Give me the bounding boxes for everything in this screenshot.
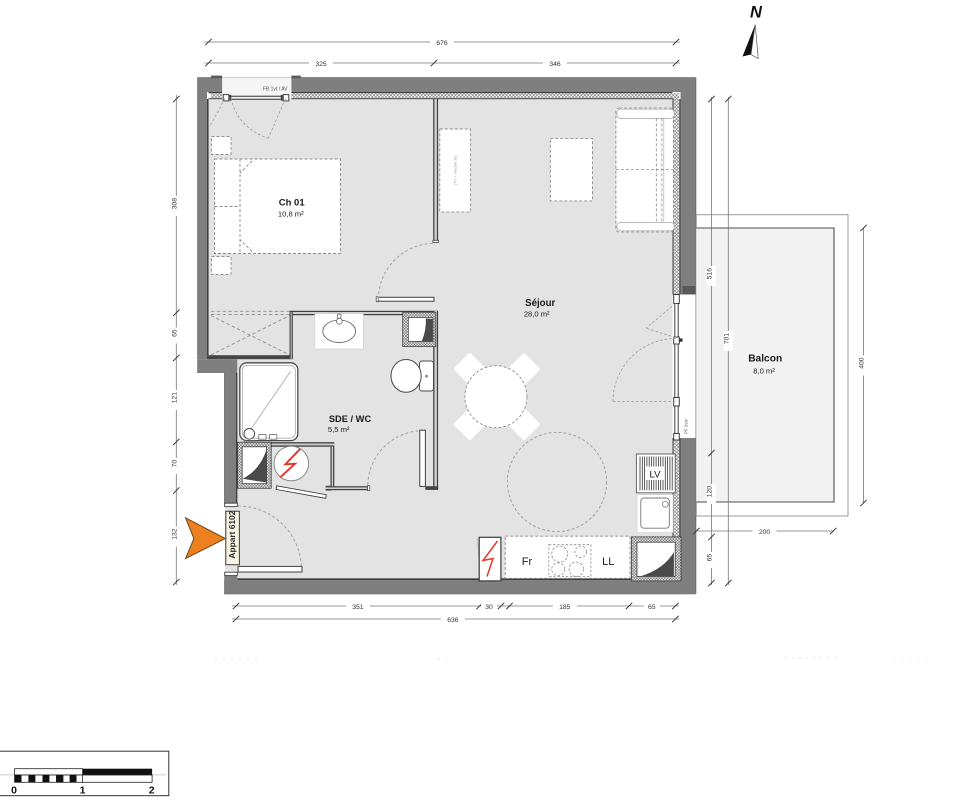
svg-text:65: 65	[707, 554, 714, 562]
svg-text:Séjour: Séjour	[525, 298, 555, 309]
svg-text:132: 132	[171, 528, 178, 540]
svg-text:FB 1vt / AV: FB 1vt / AV	[263, 86, 288, 92]
svg-text:Balcon: Balcon	[748, 354, 782, 365]
svg-text:516: 516	[707, 268, 714, 280]
svg-text:LL: LL	[602, 556, 614, 568]
svg-text:SDE / WC: SDE / WC	[329, 414, 372, 424]
svg-text:Appart 6102: Appart 6102	[227, 510, 237, 558]
svg-text:N: N	[750, 4, 763, 22]
svg-text:5,5 m²: 5,5 m²	[328, 425, 350, 434]
svg-text:701: 701	[723, 333, 730, 345]
svg-text:676: 676	[436, 40, 448, 47]
svg-text:351: 351	[352, 604, 364, 611]
svg-text:10,8 m²: 10,8 m²	[278, 210, 304, 219]
svg-text:400: 400	[859, 357, 866, 369]
svg-text:65: 65	[171, 329, 178, 337]
svg-text:28,0 m²: 28,0 m²	[524, 310, 550, 319]
svg-text:0: 0	[11, 785, 17, 797]
svg-text:Ch 01: Ch 01	[279, 198, 306, 209]
svg-text:120: 120	[707, 486, 714, 498]
svg-text:200: 200	[759, 529, 771, 536]
svg-text:PF 2vtx: PF 2vtx	[684, 418, 689, 434]
svg-text:325: 325	[315, 61, 327, 68]
svg-text:Fr: Fr	[522, 556, 533, 568]
svg-text:(TV + meuble tv): (TV + meuble tv)	[453, 155, 458, 185]
svg-text:185: 185	[559, 604, 571, 611]
svg-text:308: 308	[171, 198, 178, 210]
svg-text:636: 636	[447, 617, 459, 624]
svg-text:2: 2	[149, 785, 155, 797]
svg-text:8,0 m²: 8,0 m²	[753, 367, 775, 376]
svg-text:30: 30	[485, 604, 493, 611]
svg-text:LV: LV	[650, 470, 662, 481]
svg-text:65: 65	[648, 604, 656, 611]
svg-text:70: 70	[171, 460, 178, 468]
svg-text:1: 1	[80, 785, 86, 797]
svg-text:346: 346	[549, 61, 561, 68]
svg-text:121: 121	[171, 392, 178, 404]
